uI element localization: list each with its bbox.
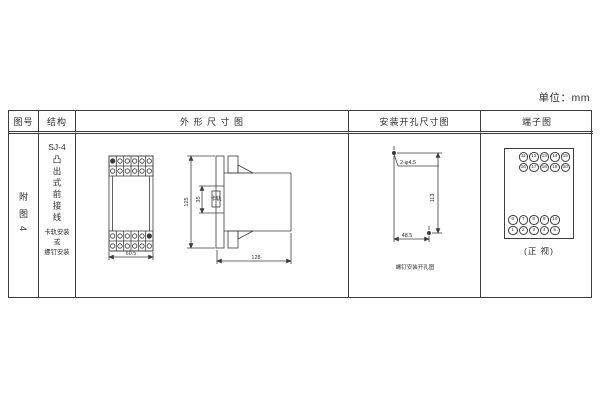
terminal-circle: 2 xyxy=(519,226,529,236)
terminal-circle: 11 xyxy=(519,152,529,162)
dim-rail: 35 卡轨 xyxy=(196,186,224,213)
terminal-circle: 13 xyxy=(540,152,550,162)
cell-terminal-drawing: 11121314151617181920 67891012345 (正 视) xyxy=(481,134,593,297)
dim-rail-text: 35 xyxy=(196,196,202,202)
header-figure-no: 图号 xyxy=(9,111,39,134)
unit-label: 单位：mm xyxy=(539,90,591,105)
terminal-panel: 11121314151617181920 67891012345 xyxy=(504,148,574,239)
terminal-circle: 14 xyxy=(550,152,560,162)
cell-outline-drawing: 60.5 125 xyxy=(76,134,349,297)
terminal-circle: 3 xyxy=(529,226,539,236)
dim-depth-text: 128 xyxy=(251,255,260,261)
rail-label-text: 卡轨 xyxy=(210,195,222,203)
terminal-circle: 5 xyxy=(550,226,560,236)
dim-hole-width-text: 48.5 xyxy=(402,233,413,239)
terminal-circle: 17 xyxy=(529,163,539,173)
dim-height-text: 125 xyxy=(184,197,190,206)
drawing-page: 单位：mm 图号 结构 外 形 尺 寸 图 安装开孔尺寸图 端子图 附图4 SJ… xyxy=(0,0,600,400)
terminal-circle: 7 xyxy=(519,215,529,225)
terminal-circle: 16 xyxy=(519,163,529,173)
cell-mounting-drawing: 2-φ4.5 113 48.5 螺钉安装开孔图 xyxy=(349,134,481,297)
terminal-caption: (正 视) xyxy=(504,245,574,257)
structure-type: 凸出式前接线 xyxy=(51,155,63,224)
mounting-caption: 螺钉安装开孔图 xyxy=(396,263,435,271)
dim-front-width: 60.5 xyxy=(109,251,153,260)
front-view: 60.5 xyxy=(109,156,153,260)
drawing-table: 图号 结构 外 形 尺 寸 图 安装开孔尺寸图 端子图 附图4 SJ-4 凸出式… xyxy=(8,110,592,298)
terminal-circle: 18 xyxy=(540,163,550,173)
terminal-bottom-group: 67891012345 xyxy=(508,215,560,235)
mount-note: 卡轨安装 或 螺钉安装 xyxy=(44,228,69,257)
terminal-circle: 19 xyxy=(550,163,560,173)
model-label: SJ-4 xyxy=(48,142,65,152)
header-terminal: 端子图 xyxy=(481,111,593,134)
cell-figure-no: 附图4 xyxy=(9,134,39,297)
terminal-circle: 10 xyxy=(550,215,560,225)
cell-structure: SJ-4 凸出式前接线 卡轨安装 或 螺钉安装 xyxy=(39,134,76,297)
holes-label-text: 2-φ4.5 xyxy=(400,160,416,166)
terminal-circle: 15 xyxy=(561,152,571,162)
terminal-circle: 1 xyxy=(508,226,518,236)
terminal-circle: 20 xyxy=(561,163,571,173)
header-mounting: 安装开孔尺寸图 xyxy=(349,111,481,134)
terminal-circle: 8 xyxy=(529,215,539,225)
terminal-circle: 9 xyxy=(540,215,550,225)
terminal-row: 678910 xyxy=(508,215,560,225)
side-view: 125 35 卡轨 128 xyxy=(184,156,291,264)
holes-callout: 2-φ4.5 xyxy=(394,154,439,166)
outline-drawing: 60.5 125 xyxy=(76,134,347,297)
figure-number: 附图4 xyxy=(17,192,30,239)
header-outline: 外 形 尺 寸 图 xyxy=(76,111,349,134)
header-structure: 结构 xyxy=(39,111,76,134)
terminal-top-group: 11121314151617181920 xyxy=(519,152,571,172)
terminal-row: 1112131415 xyxy=(519,152,571,162)
terminal-circle: 12 xyxy=(529,152,539,162)
dim-hole-width: 48.5 xyxy=(394,156,429,242)
dim-hole-height-text: 113 xyxy=(430,194,436,203)
front-terminals-bottom xyxy=(109,231,153,251)
terminal-circle: 4 xyxy=(540,226,550,236)
terminal-row: 12345 xyxy=(508,226,560,236)
mounting-drawing: 2-φ4.5 113 48.5 螺钉安装开孔图 xyxy=(349,134,479,297)
terminal-row: 1617181920 xyxy=(519,163,571,173)
dim-front-width-text: 60.5 xyxy=(126,251,137,257)
front-terminals-top xyxy=(109,156,153,176)
terminal-circle: 6 xyxy=(508,215,518,225)
